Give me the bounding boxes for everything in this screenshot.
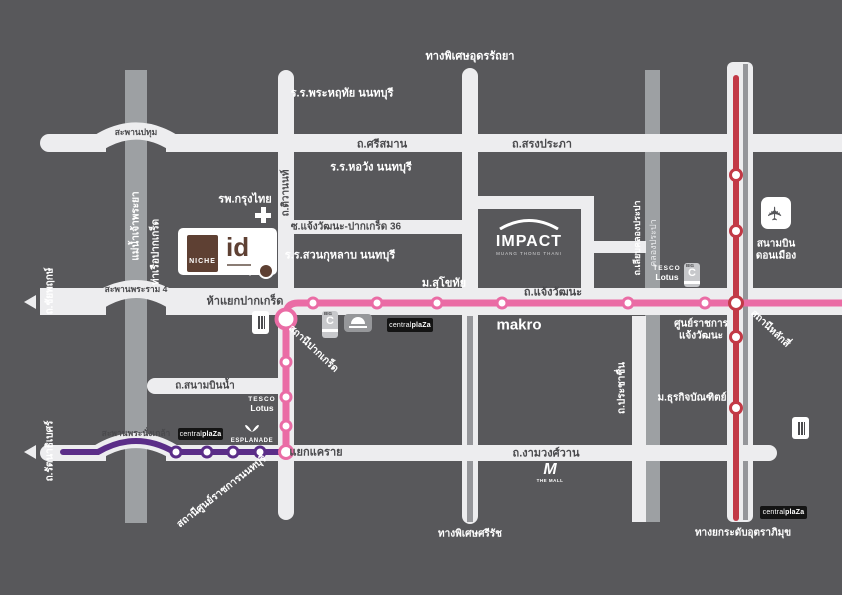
esplanade-text: ESPLANADE [228,438,276,444]
lotus-text: Lotus [245,404,279,413]
impact-arch-icon [494,216,564,230]
centralplaza-logo: centralplaZa [178,428,223,440]
esplanade-butterfly-icon [241,422,263,433]
label-don-mueang-airport: สนามบิน ดอนเมือง [756,239,796,262]
station-marker [228,447,238,457]
laksi-interchange-station [730,297,743,310]
label-phranangklao-bridge: สะพานพระนั่งเกล้า [102,429,171,439]
label-khaerai-intersection: แยกแคราย [289,447,342,460]
impact-wordmark: IMPACT [481,235,577,249]
label-sanambinnam-road: ถ.สนามบินน้ำ [175,380,235,392]
cross-h [255,213,271,218]
door-glyph [797,422,805,435]
label-government-center-line2: แจ้งวัฒนะ [674,330,728,342]
impact-logo: IMPACT MUANG THONG THANI [481,216,577,260]
station-marker [202,447,212,457]
map-canvas: ทางพิเศษอุดรรัถยา ร.ร.พระหฤทัย นนทบุรี ส… [0,0,842,595]
label-airport-line2: ดอนเมือง [756,250,796,262]
label-government-center: ศูนย์ราชการ แจ้งวัฒนะ [674,319,728,342]
mall-text: THE MALL [536,478,564,483]
station-marker [700,298,710,308]
plaza-text: plaZa [202,431,221,438]
bigc-base [684,281,700,284]
tesco-lotus-logo: TESCO Lotus [650,266,684,281]
label-prachachuen-road: ถ.ประชาชื่น [616,362,628,414]
label-airport-line1: สนามบิน [756,239,796,251]
label-dhurakij-university: ม.ธุรกิจบัณฑิตย์ [657,392,726,404]
makro-logo: makro [496,316,541,333]
central-text: central [180,431,202,438]
c-text: C [322,316,338,327]
location-pin-icon [258,263,274,279]
centralplaza-logo: centralplaZa [760,506,807,519]
station-marker [281,357,291,367]
label-expressway-udon-ratthaya: ทางพิเศษอุดรรัถยา [426,51,515,64]
centralplaza-logo: centralplaZa [387,318,433,332]
niche-brown-square: NICHE [187,235,218,272]
station-marker [171,447,181,457]
label-chaengwattana-road: ถ.แจ้งวัฒนะ [524,287,582,300]
mall-m-icon: M [536,462,564,478]
central-text: central [389,322,411,329]
big-c-logo: BIG C [322,311,338,338]
label-tiwanon-road: ถ.ติวานนท์ [280,170,292,217]
label-krungthai-hospital: รพ.กรุงไทย [218,194,271,207]
station-marker [432,298,442,308]
building-icon [252,311,269,334]
door-glyph [257,316,265,329]
arrow-west-chaiyapruek-icon [24,295,36,309]
station-marker [497,298,507,308]
station-marker [308,298,318,308]
lotus-text: Lotus [650,273,684,282]
station-marker [731,332,742,343]
label-government-center-line1: ศูนย์ราชการ [674,319,728,331]
transit-layer [0,0,842,595]
label-chaiyapruek-road: ถ.ชัยพฤกษ์ [44,268,56,315]
label-school-horwang: ร.ร.หอวัง นนทบุรี [330,162,412,175]
the-mall-logo: M THE MALL [536,462,564,483]
esplanade-logo: ESPLANADE [228,420,276,444]
label-hayaek-pakkret: ห้าแยกปากเกร็ด [207,296,284,309]
label-srirat-expressway: ทางพิเศษศรีรัช [438,528,502,540]
station-marker [731,170,742,181]
label-school-suankularb: ร.ร.สวนกุหลาบ นนทบุรี [285,250,395,263]
station-marker [731,403,742,414]
label-songprapha-road: ถ.สรงประภา [512,139,572,152]
hospital-cross-icon [255,207,271,223]
label-uttaraphimuk-tollway: ทางยกระดับอุตราภิมุข [695,527,791,539]
arrow-west-rattanathibet-icon [24,445,36,459]
dome-caption-bar [349,326,367,328]
dome-icon [351,317,365,324]
impact-sub: MUANG THONG THANI [481,251,577,256]
label-school-phraharuthai: ร.ร.พระหฤทัย นนทบุรี [291,88,394,101]
niche-wordmark: NICHE [187,258,218,265]
label-chao-phraya-river: แม่น้ำเจ้าพระยา [130,191,142,260]
station-marker [281,392,291,402]
label-liab-klong-prapa-road: ถ.เลียบคลองประปา [632,200,642,275]
building-icon [792,417,809,439]
niche-id-project-card: NICHE id [178,228,277,275]
label-klong-prapa: คลองประปา [648,219,658,266]
id-wordmark: id [226,232,249,263]
station-marker [623,298,633,308]
label-rattanathibet-road: ถ.รัตนาธิเบศร์ [44,421,56,482]
label-pathum-bridge: สะพานปทุม [115,128,158,138]
label-sukhothai-university: ม.สุโขทัย [422,278,466,291]
tesco-lotus-logo: TESCO Lotus [245,397,279,412]
plaza-text: plaZa [785,509,804,516]
plaza-text: plaZa [412,322,431,329]
c-text: C [684,268,700,279]
dome-building-logo [344,314,372,332]
label-rama4-bridge: สะพานพระราม 4 [105,285,168,295]
airport-icon: ✈ [761,197,791,229]
airplane-glyph-icon: ✈ [764,205,787,221]
label-soi-36: ซ.แจ้งวัฒนะ-ปากเกร็ด 36 [291,221,401,233]
bigc-base [322,329,338,332]
id-caption-bar [227,264,251,266]
label-ngamwongwan-road: ถ.งามวงศ์วาน [513,448,580,461]
station-marker [731,226,742,237]
label-pakkret-pier: ท่าเรือปากเกร็ด [150,219,162,285]
central-text: central [763,509,785,516]
station-marker [372,298,382,308]
station-marker [281,421,291,431]
big-c-logo: BIG C [684,263,700,287]
label-srisaman-road: ถ.ศรีสมาน [357,139,407,152]
